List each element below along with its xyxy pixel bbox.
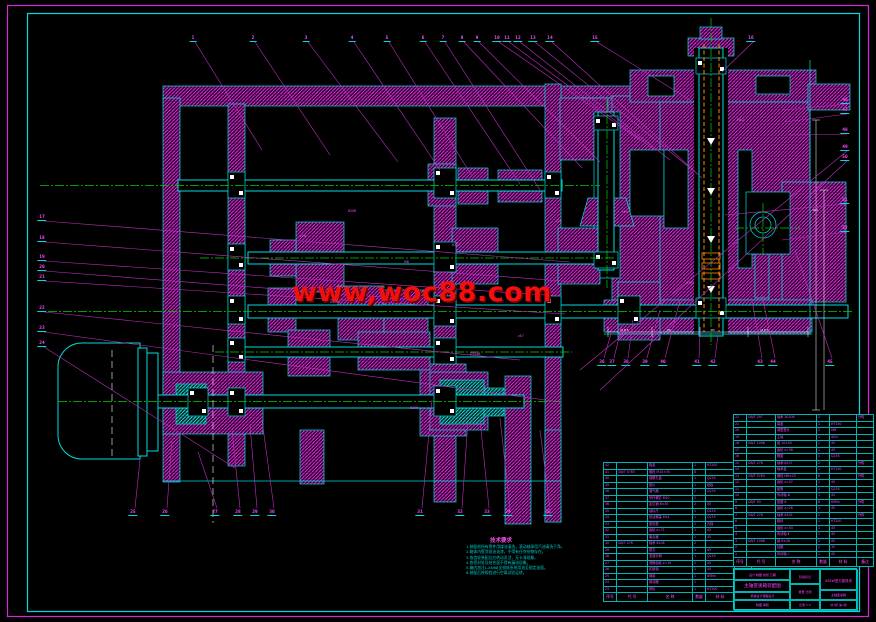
bom-header-cell: 名 称 <box>648 593 693 602</box>
part-code-label: 6207 <box>452 243 460 247</box>
callout-balloon: 19 <box>37 255 46 261</box>
part-code-label: M12 <box>737 118 744 122</box>
callout-balloon: 38 <box>621 360 630 366</box>
callout-balloon: 2 <box>250 36 257 42</box>
callout-balloon: 25 <box>128 510 137 516</box>
part-code-label: 6306 <box>410 406 418 410</box>
callout-balloon: 39 <box>640 360 649 366</box>
callout-balloon: 42 <box>708 360 717 366</box>
callout-balloon: 12 <box>513 36 522 42</box>
title-block-cell: X62W型万能铣床 <box>819 569 858 591</box>
bom-header-cell: 代 号 <box>747 558 776 567</box>
notes-lines: 1.装配前所有零件用煤油清洗，滚动轴承用汽油清洗干净。2.箱体内壁涂耐油油漆，不… <box>466 544 586 576</box>
callout-balloon: 24 <box>37 341 46 347</box>
callout-balloon: 30 <box>267 510 276 516</box>
dimension-label: 460 <box>812 208 818 212</box>
callout-balloon: 1 <box>190 36 197 42</box>
bom-header-cell: 序号 <box>734 558 747 567</box>
bom-header-row: 序号代 号名 称数量材 料备注 <box>604 593 752 602</box>
title-block-cell: 共1张 第1张 <box>819 599 858 611</box>
callout-balloon: 5 <box>384 36 391 42</box>
callout-balloon: 45 <box>825 360 834 366</box>
callout-balloon: 18 <box>37 236 46 242</box>
cad-drawing-canvas[interactable]: www,woc88.com 技术要求 1.装配前所有零件用煤油清洗，滚动轴承用汽… <box>0 0 876 622</box>
notes-title: 技术要求 <box>490 536 586 544</box>
callout-balloon: 51 <box>840 198 849 204</box>
bom-header-cell: 数量 <box>817 558 830 567</box>
part-code-label: Ø35k6 <box>470 352 480 356</box>
callout-balloon: 22 <box>37 306 46 312</box>
callout-balloon: 28 <box>233 510 242 516</box>
title-block-cell: 制图 审核 <box>734 599 791 611</box>
electric-motor <box>58 343 158 459</box>
callout-balloon: 48 <box>840 128 849 134</box>
callout-balloon: 29 <box>250 510 259 516</box>
callout-balloon: 31 <box>415 510 424 516</box>
part-code-label: z47 <box>518 334 524 338</box>
callout-balloon: 13 <box>528 36 537 42</box>
callout-balloon: 50 <box>840 155 849 161</box>
bom-table: 42箱盖1HT20041GB/T 5783螺栓 M10×358外购40观察孔盖1… <box>603 462 752 602</box>
part-code-label: z38 <box>300 234 306 238</box>
notes-line: 6.装配后按规程进行空载试验运转。 <box>466 570 586 575</box>
callout-balloon: 9 <box>474 36 481 42</box>
dimension-label: 95 <box>711 328 715 332</box>
callout-balloon: 41 <box>692 360 701 366</box>
callout-balloon: 7 <box>440 36 447 42</box>
technical-notes: 技术要求 1.装配前所有零件用煤油清洗，滚动轴承用汽油清洗干净。2.箱体内壁涂耐… <box>466 536 586 576</box>
bom-header-cell: 名 称 <box>776 558 817 567</box>
callout-balloon: 33 <box>482 510 491 516</box>
callout-balloon: 44 <box>768 360 777 366</box>
callout-balloon: 10 <box>492 36 501 42</box>
callout-balloon: 4 <box>349 36 356 42</box>
part-code-label: 6305 <box>686 281 694 285</box>
callout-balloon: 6 <box>420 36 427 42</box>
callout-balloon: 17 <box>37 215 46 221</box>
callout-balloon: 43 <box>755 360 764 366</box>
callout-balloon: 32 <box>455 510 464 516</box>
callout-balloon: 34 <box>503 510 512 516</box>
callout-balloon: 21 <box>37 275 46 281</box>
callout-balloon: 16 <box>746 36 755 42</box>
part-code-label: 6206 <box>348 209 356 213</box>
dimension-label: 118.5 <box>620 328 629 332</box>
part-code-label: M8 <box>404 260 409 264</box>
bom-header-cell: 代 号 <box>617 593 648 602</box>
callout-balloon: 47 <box>840 108 849 114</box>
bom-header-cell: 材 料 <box>830 558 857 567</box>
callout-balloon: 35 <box>543 510 552 516</box>
callout-balloon: 52 <box>840 226 849 232</box>
callout-balloon: 15 <box>590 36 599 42</box>
callout-balloon: 27 <box>210 510 219 516</box>
bom-table: 22GB/T 297轴承 302062外购21端盖1HT15020调整垫片208… <box>733 414 874 567</box>
bom-header-cell: 序号 <box>604 593 617 602</box>
bom-header-row: 序号代 号名 称数量材 料备注 <box>734 558 874 567</box>
bom-header-cell: 材 料 <box>706 593 735 602</box>
part-code-label: z26 <box>556 219 562 223</box>
callout-balloon: 36 <box>597 360 606 366</box>
callout-balloon: 23 <box>37 326 46 332</box>
title-block-cell: 比例 1:2 <box>789 599 821 611</box>
callout-balloon: 40 <box>658 360 667 366</box>
callout-balloon: 20 <box>37 265 46 271</box>
title-block: 设计 制图 校核 日期主轴变速箱装配图机械设计课程设计制图 审核阶段标记重量 比… <box>733 568 857 610</box>
part-code-label: z54 <box>622 210 628 214</box>
callout-balloon: 49 <box>840 145 849 151</box>
callout-balloon: 26 <box>160 510 169 516</box>
callout-balloon: 3 <box>303 36 310 42</box>
callout-balloon: 11 <box>502 36 511 42</box>
bom-header-cell: 备注 <box>857 558 874 567</box>
part-code-label: Ø40k6 <box>330 300 340 304</box>
bom-header-cell: 数量 <box>693 593 706 602</box>
callout-balloon: 8 <box>459 36 466 42</box>
callout-balloon: 14 <box>545 36 554 42</box>
callout-balloon: 37 <box>607 360 616 366</box>
dimension-label: 118.5 <box>760 328 769 332</box>
dimension-label: 86 <box>667 328 671 332</box>
callout-balloon: 46 <box>840 98 849 104</box>
